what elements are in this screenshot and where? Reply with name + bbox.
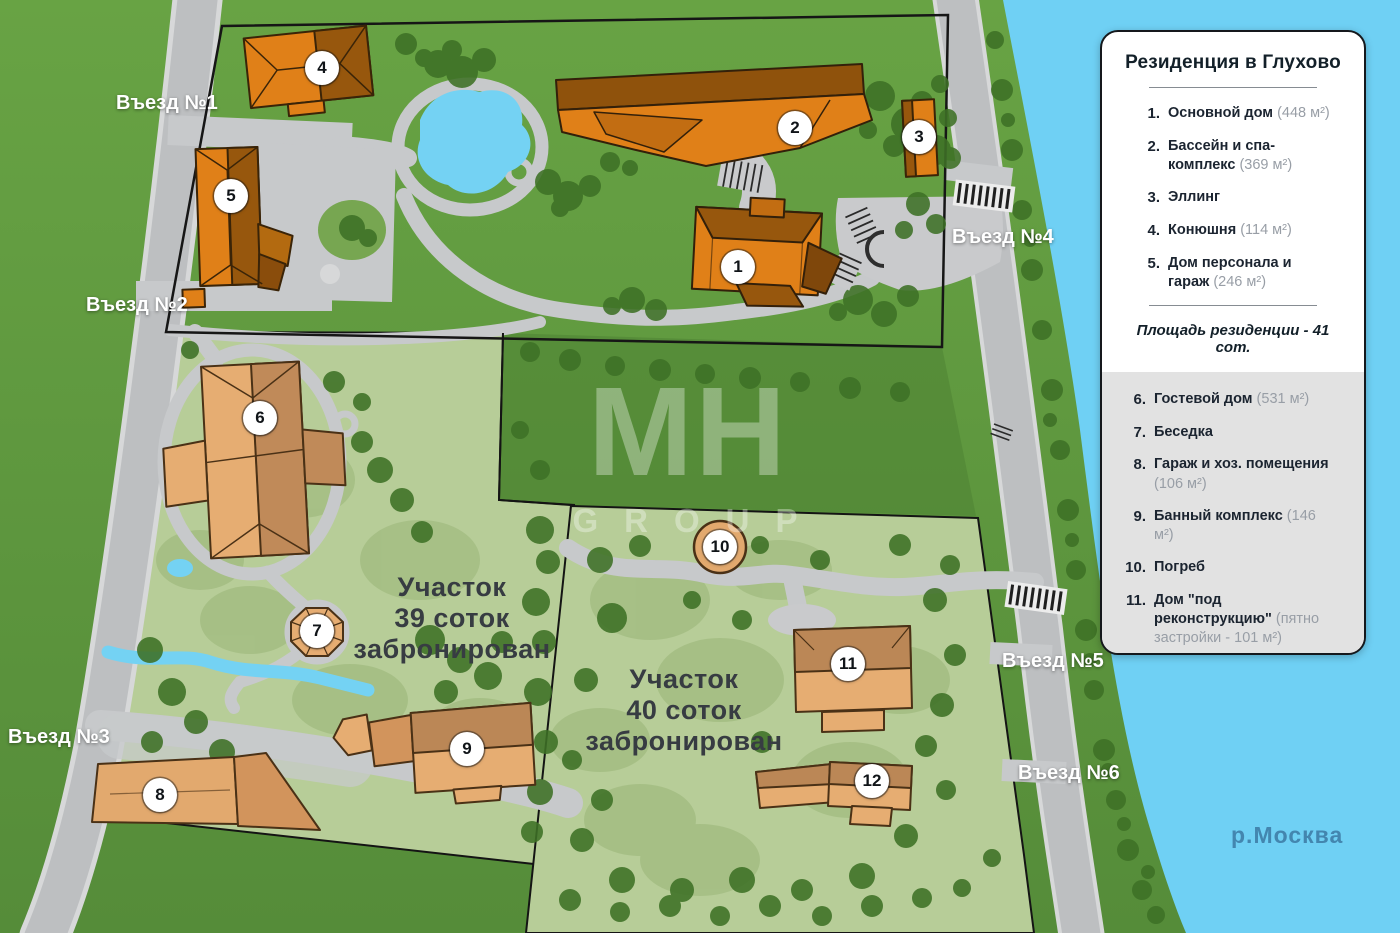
entrance-label-5: Въезд №5 bbox=[1002, 650, 1104, 673]
legend-item-name: Эллинг bbox=[1168, 189, 1220, 205]
legend-item-name: Погреб bbox=[1154, 559, 1205, 575]
watermark: MH GROUP bbox=[552, 374, 823, 540]
legend-item-area: (448 м²) bbox=[1277, 105, 1330, 121]
entrance-label-4: Въезд №4 bbox=[952, 226, 1054, 249]
parcel-39-label: Участок 39 соток забронирован bbox=[353, 572, 550, 665]
parcel-40-label: Участок 40 соток забронирован bbox=[585, 664, 782, 757]
legend-panel: Резиденция в Глухово 1. Основной дом (44… bbox=[1100, 30, 1366, 655]
legend-item-name: Банный комплекс bbox=[1154, 508, 1283, 524]
legend-item-num: 2. bbox=[1132, 137, 1160, 175]
legend-item-area: (114 м²) bbox=[1240, 222, 1292, 238]
legend-item-6: 6. Гостевой дом (531 м²) bbox=[1104, 390, 1348, 410]
legend-item-name: Основной дом bbox=[1168, 105, 1273, 121]
legend-item-7: 7. Беседка bbox=[1104, 423, 1348, 443]
legend-item-3: 3. Эллинг bbox=[1118, 188, 1348, 208]
legend-head: Резиденция в Глухово 1. Основной дом (44… bbox=[1102, 32, 1364, 372]
river-label: р.Москва bbox=[1231, 822, 1343, 849]
legend-item-2: 2. Бассейн и спа-комплекс (369 м²) bbox=[1118, 137, 1348, 175]
parcel-40-line2: 40 соток bbox=[585, 695, 782, 726]
parcel-39-line1: Участок bbox=[353, 572, 550, 603]
legend-separator-2 bbox=[1149, 305, 1317, 306]
legend-item-num: 4. bbox=[1132, 221, 1160, 241]
legend-secondary-section: 6. Гостевой дом (531 м²) 7. Беседка 8. Г… bbox=[1102, 372, 1364, 655]
legend-item-num: 9. bbox=[1118, 507, 1146, 545]
legend-item-5: 5. Дом персонала и гараж (246 м²) bbox=[1118, 254, 1348, 292]
parcel-39-line2: 39 соток bbox=[353, 603, 550, 634]
legend-item-area: (106 м²) bbox=[1154, 476, 1207, 492]
legend-item-name: Гараж и хоз. помещения bbox=[1154, 456, 1329, 472]
entrance-label-3: Въезд №3 bbox=[8, 726, 110, 749]
legend-item-9: 9. Банный комплекс (146 м²) bbox=[1104, 507, 1348, 545]
entrance-label-2: Въезд №2 bbox=[86, 294, 188, 317]
legend-item-name: Дом "под реконструкцию" bbox=[1154, 592, 1272, 627]
parcel-39-line3: забронирован bbox=[353, 634, 550, 665]
building-marker-7[interactable]: 7 bbox=[300, 614, 334, 648]
legend-item-num: 1. bbox=[1132, 104, 1160, 124]
building-marker-5[interactable]: 5 bbox=[214, 179, 248, 213]
legend-area-note: Площадь резиденции - 41 сот. bbox=[1118, 322, 1348, 356]
building-marker-10[interactable]: 10 bbox=[703, 530, 737, 564]
building-marker-1[interactable]: 1 bbox=[721, 250, 755, 284]
entrance-label-6: Въезд №6 bbox=[1018, 762, 1120, 785]
legend-item-10: 10. Погреб bbox=[1104, 558, 1348, 578]
small-pond bbox=[167, 559, 193, 577]
legend-item-8: 8. Гараж и хоз. помещения (106 м²) bbox=[1104, 455, 1348, 493]
building-marker-12[interactable]: 12 bbox=[855, 764, 889, 798]
legend-item-area: (246 м²) bbox=[1213, 274, 1266, 290]
building-marker-4[interactable]: 4 bbox=[305, 51, 339, 85]
parcel-40-line3: забронирован bbox=[585, 726, 782, 757]
legend-separator-1 bbox=[1149, 87, 1317, 88]
plaza-dot bbox=[320, 264, 340, 284]
building-marker-9[interactable]: 9 bbox=[450, 732, 484, 766]
parcel-40-line1: Участок bbox=[585, 664, 782, 695]
legend-item-area: (531 м²) bbox=[1257, 391, 1310, 407]
building-marker-8[interactable]: 8 bbox=[143, 778, 177, 812]
legend-item-4: 4. Конюшня (114 м²) bbox=[1118, 221, 1348, 241]
legend-item-num: 7. bbox=[1118, 423, 1146, 443]
site-plan: MH GROUP Въезд №1 Въезд №2 Въезд №3 Въез… bbox=[0, 0, 1400, 933]
building-marker-3[interactable]: 3 bbox=[902, 120, 936, 154]
legend-item-num: 3. bbox=[1132, 188, 1160, 208]
legend-item-name: Гостевой дом bbox=[1154, 391, 1253, 407]
legend-item-num: 6. bbox=[1118, 390, 1146, 410]
legend-title: Резиденция в Глухово bbox=[1118, 52, 1348, 74]
entrance-label-1: Въезд №1 bbox=[116, 92, 218, 115]
legend-item-num: 10. bbox=[1118, 558, 1146, 578]
legend-item-name: Конюшня bbox=[1168, 222, 1236, 238]
building-marker-11[interactable]: 11 bbox=[831, 647, 865, 681]
legend-item-num: 11. bbox=[1118, 591, 1146, 648]
legend-item-11: 11. Дом "под реконструкцию" (пятно застр… bbox=[1104, 591, 1348, 648]
legend-item-num: 8. bbox=[1118, 455, 1146, 493]
legend-item-area: (369 м²) bbox=[1239, 157, 1292, 173]
watermark-group: GROUP bbox=[552, 502, 823, 540]
building-marker-6[interactable]: 6 bbox=[243, 401, 277, 435]
watermark-mh: MH bbox=[552, 374, 823, 490]
legend-item-num: 5. bbox=[1132, 254, 1160, 292]
legend-item-name: Беседка bbox=[1154, 424, 1213, 440]
legend-item-1: 1. Основной дом (448 м²) bbox=[1118, 104, 1348, 124]
building-marker-2[interactable]: 2 bbox=[778, 111, 812, 145]
